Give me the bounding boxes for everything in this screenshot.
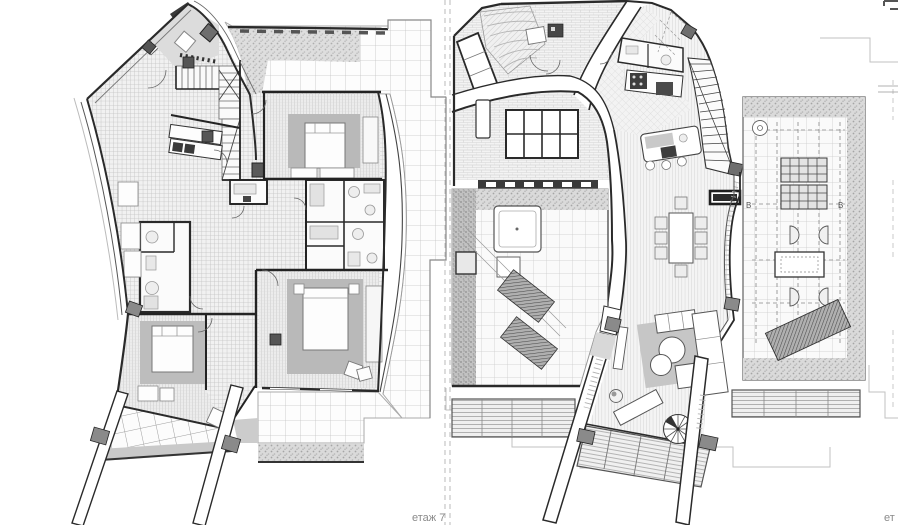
svg-text:B: B [746, 201, 751, 210]
svg-text:ет: ет [884, 512, 895, 524]
svg-text:етаж 7: етаж 7 [412, 512, 445, 524]
svg-text:B: B [838, 201, 843, 210]
